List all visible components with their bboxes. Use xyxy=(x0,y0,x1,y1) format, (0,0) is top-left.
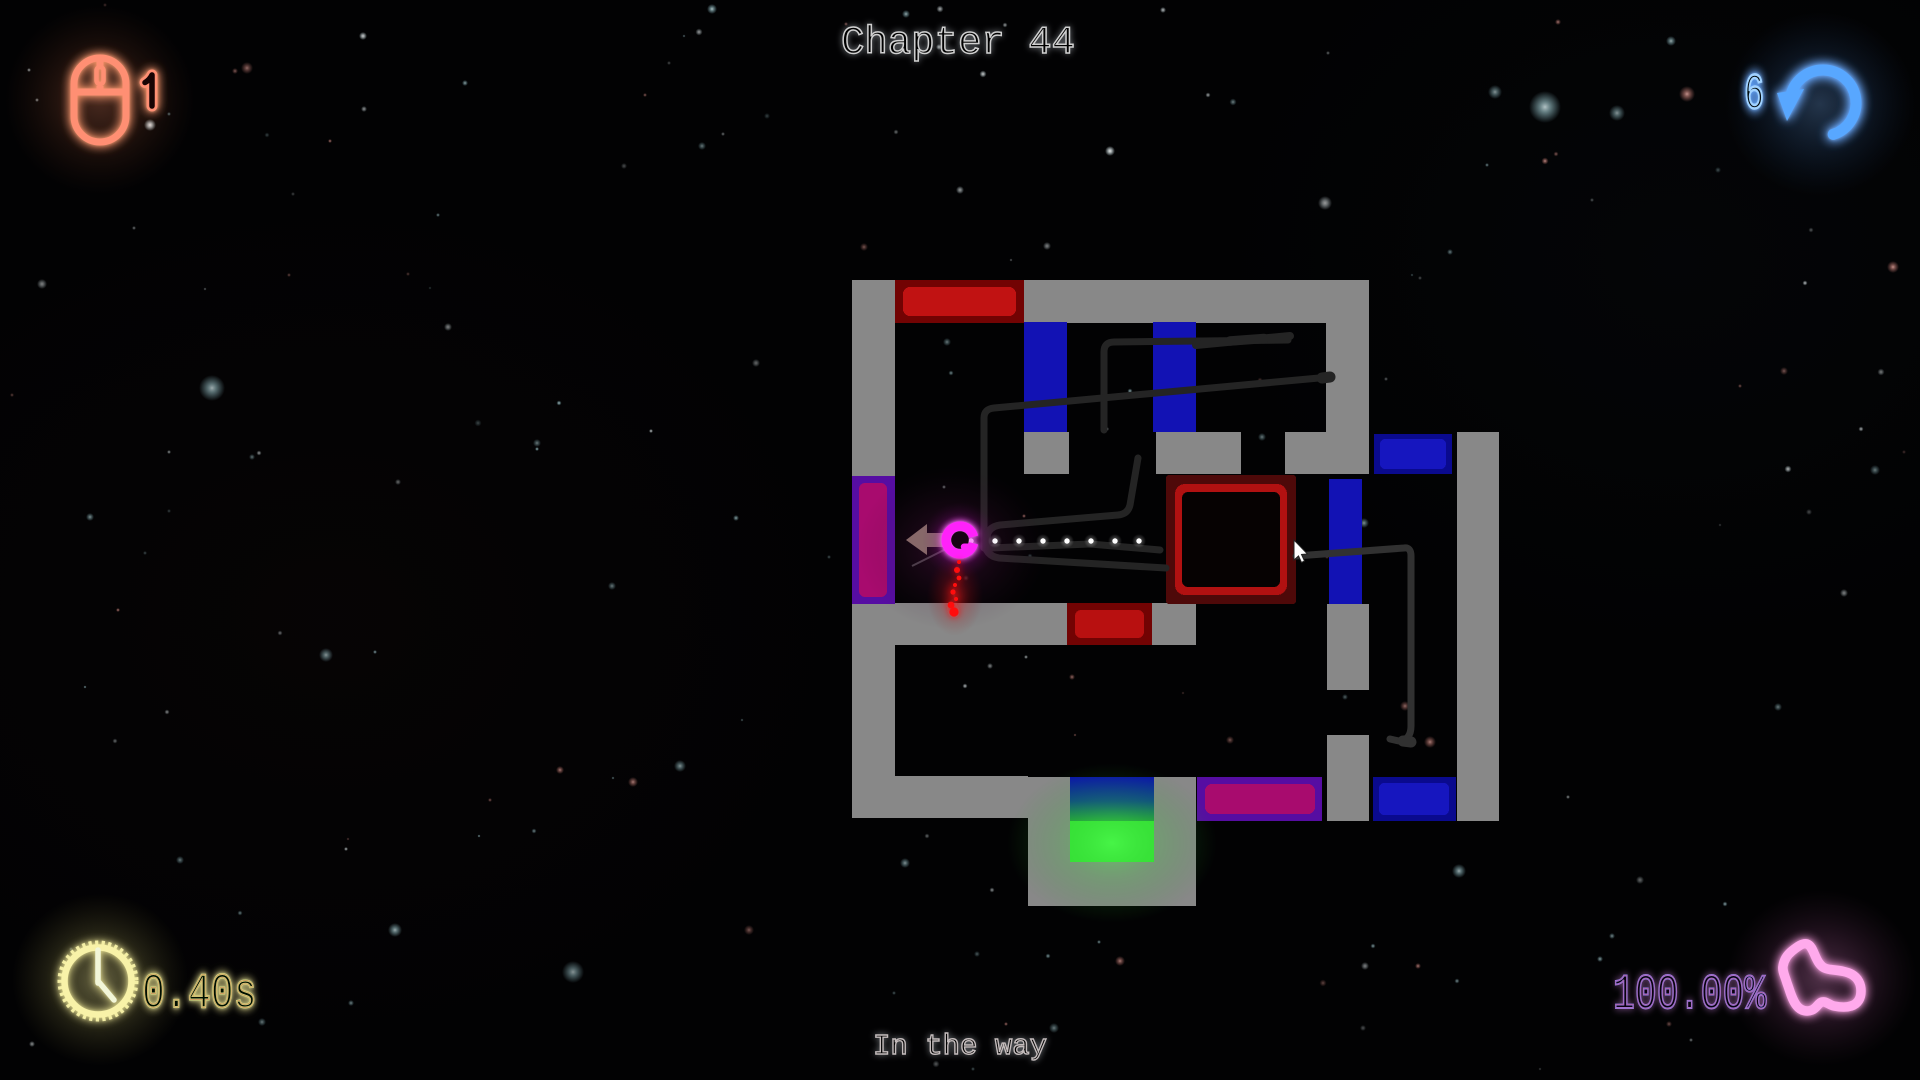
svg-text:0.40s: 0.40s xyxy=(142,967,257,1023)
svg-text:6: 6 xyxy=(1744,67,1764,123)
svg-text:Chapter 44: Chapter 44 xyxy=(841,21,1075,65)
svg-text:100.00%: 100.00% xyxy=(1613,967,1766,1023)
svg-text:In the way: In the way xyxy=(873,1030,1047,1063)
